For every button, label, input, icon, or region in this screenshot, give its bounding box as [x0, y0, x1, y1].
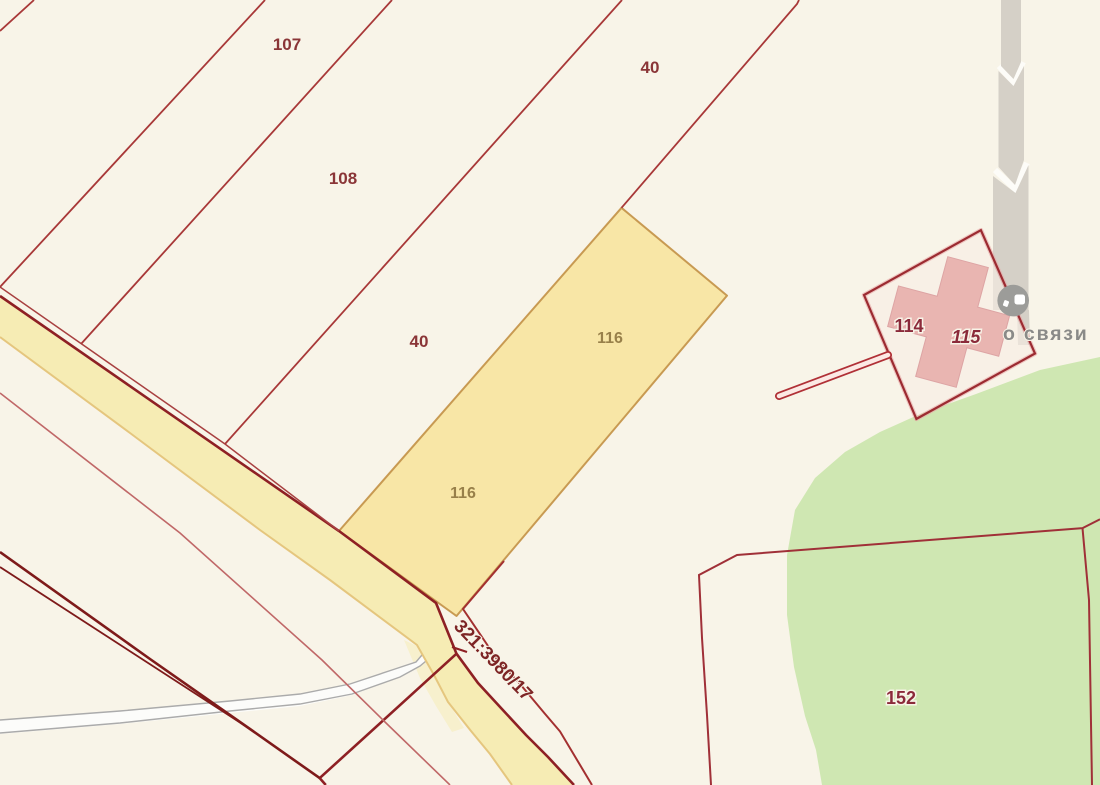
- svg-text:40: 40: [641, 58, 660, 77]
- svg-text:114: 114: [894, 316, 923, 336]
- svg-text:116: 116: [597, 330, 623, 347]
- svg-text:152: 152: [886, 688, 916, 708]
- svg-text:115: 115: [952, 327, 982, 347]
- svg-text:о связи: о связи: [1003, 323, 1089, 345]
- svg-text:40: 40: [410, 332, 429, 351]
- svg-text:116: 116: [450, 485, 476, 502]
- svg-text:108: 108: [329, 169, 357, 188]
- svg-text:107: 107: [273, 35, 301, 54]
